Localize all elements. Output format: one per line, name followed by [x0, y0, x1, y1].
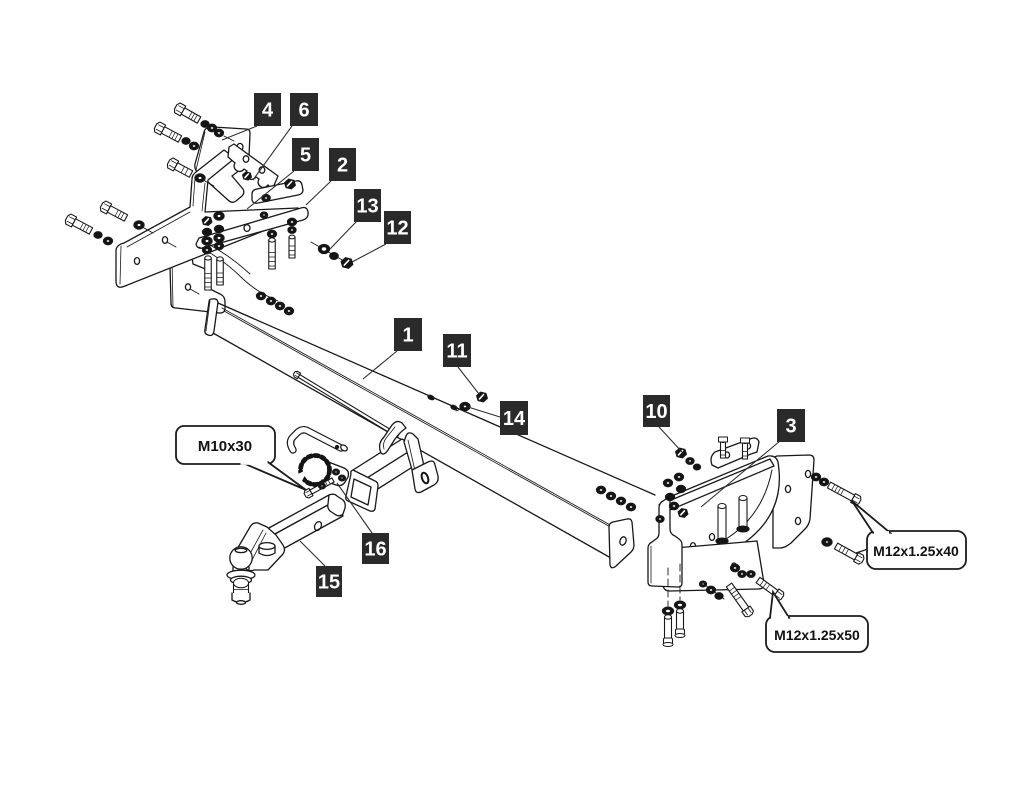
svg-text:12: 12	[386, 218, 408, 240]
svg-text:10: 10	[645, 401, 667, 423]
svg-text:M10x30: M10x30	[198, 438, 252, 455]
svg-text:5: 5	[300, 145, 311, 167]
svg-text:4: 4	[262, 100, 274, 122]
svg-text:14: 14	[503, 408, 526, 430]
svg-text:11: 11	[446, 341, 467, 363]
svg-text:13: 13	[356, 196, 378, 218]
svg-text:1: 1	[402, 325, 413, 347]
svg-text:16: 16	[364, 539, 386, 561]
svg-text:3: 3	[785, 416, 796, 438]
svg-text:M12x1.25x50: M12x1.25x50	[774, 627, 860, 643]
svg-text:15: 15	[318, 572, 340, 594]
svg-text:6: 6	[298, 100, 309, 122]
svg-text:2: 2	[337, 155, 348, 177]
svg-text:M12x1.25x40: M12x1.25x40	[873, 543, 959, 559]
